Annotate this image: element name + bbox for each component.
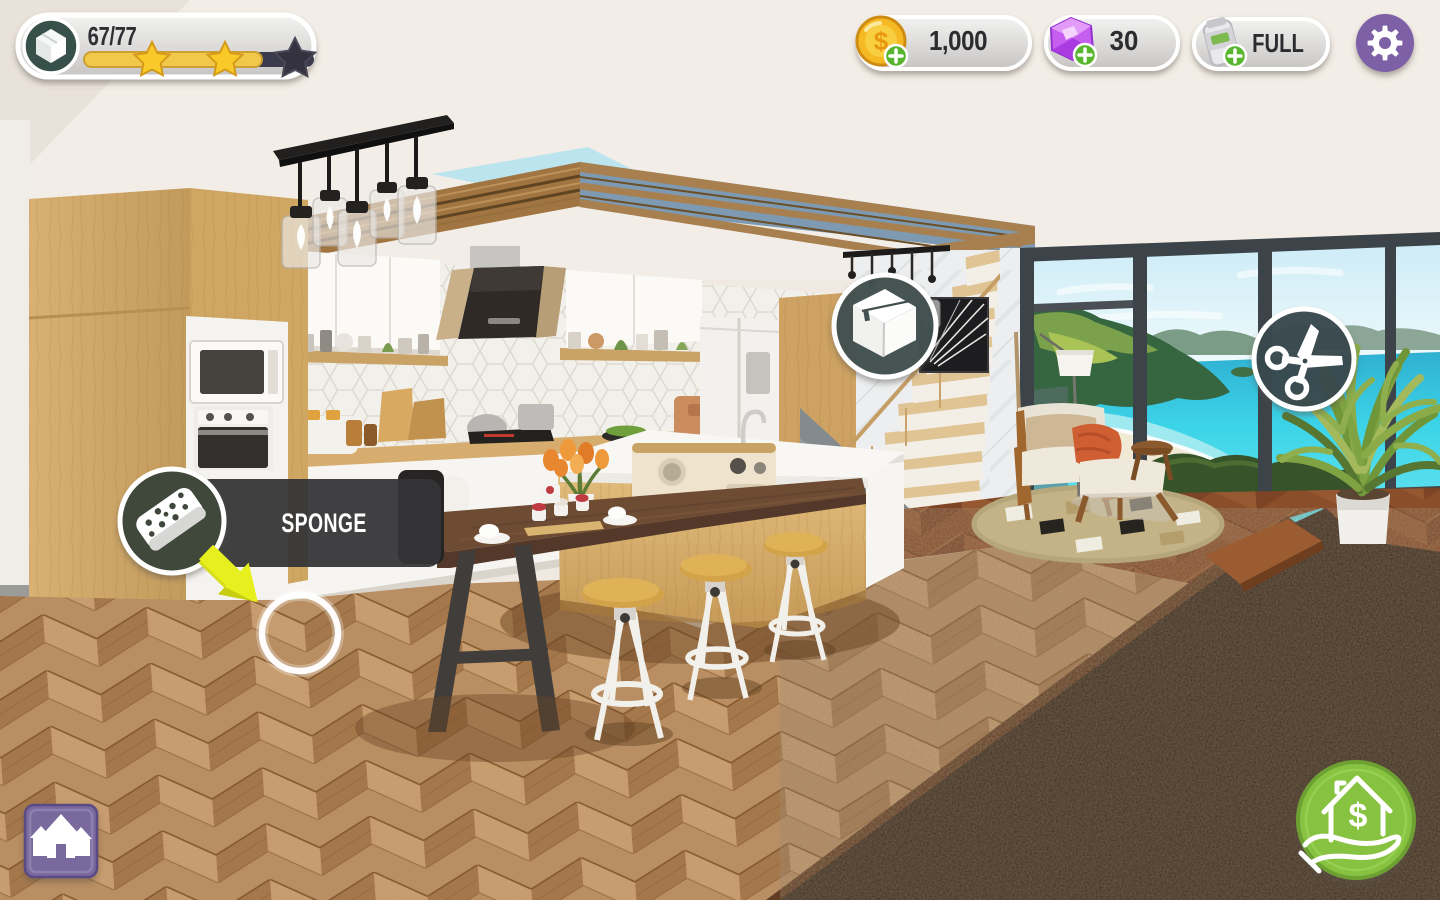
svg-text:$: $ bbox=[1349, 797, 1368, 835]
svg-text:SPONGE: SPONGE bbox=[281, 508, 366, 538]
svg-text:67/77: 67/77 bbox=[88, 22, 137, 51]
svg-text:1,000: 1,000 bbox=[929, 24, 987, 56]
svg-text:FULL: FULL bbox=[1252, 29, 1304, 58]
svg-text:30: 30 bbox=[1110, 25, 1139, 56]
